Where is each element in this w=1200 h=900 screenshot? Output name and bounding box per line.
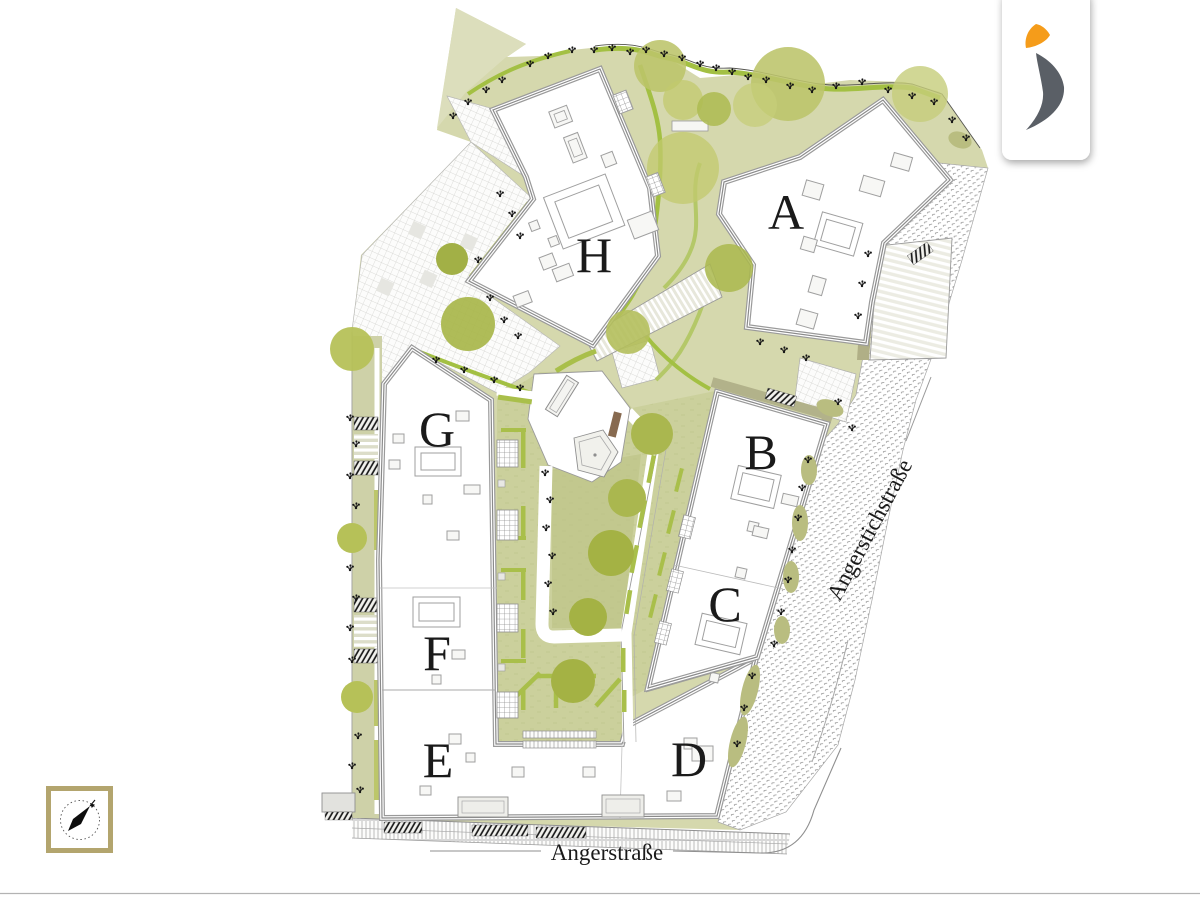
svg-text:E: E	[423, 732, 454, 788]
svg-text:A: A	[768, 184, 804, 240]
svg-text:H: H	[576, 227, 612, 283]
svg-text:C: C	[708, 576, 741, 632]
svg-text:B: B	[744, 424, 777, 480]
svg-text:F: F	[423, 625, 451, 681]
svg-text:D: D	[671, 731, 707, 787]
svg-text:Angerstraße: Angerstraße	[551, 840, 663, 865]
svg-text:G: G	[419, 401, 455, 457]
